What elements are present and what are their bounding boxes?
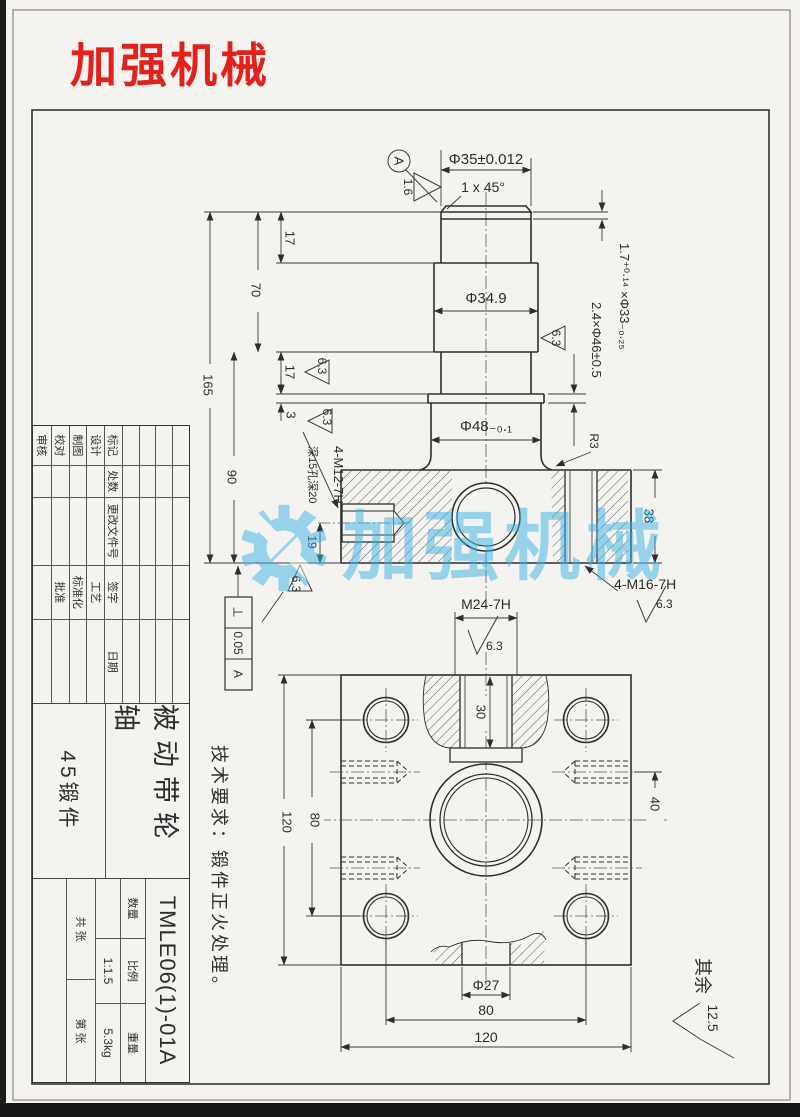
tb-empty [33, 566, 51, 621]
dim-165: 165 [200, 374, 215, 396]
tb-header-genggai: 更改文件号 [104, 498, 122, 566]
tb-value-weight: 5.3kg [95, 1004, 120, 1082]
finish-63-groove: 6.3 [549, 330, 563, 347]
tb-value-scale: 1:1.5 [95, 939, 120, 1004]
dim-r3: R3 [587, 433, 601, 449]
dim-chamfer: 1 x 45° [461, 179, 505, 195]
part-material: 45锻件 [33, 704, 105, 878]
tb-label-sheji: 设计 [86, 426, 104, 466]
tb-label-qty: 数量 [120, 879, 145, 939]
thread-m12: 4-M12-7H [331, 446, 346, 504]
company-logo: 加强机械 [70, 42, 270, 89]
datum-a-label: A [391, 157, 406, 166]
dim-38: 38 [641, 509, 656, 523]
tb-label-zhitu: 制图 [69, 426, 87, 466]
dim-17b: 17 [282, 365, 297, 379]
dim-80-bottom: 80 [478, 1002, 494, 1018]
dim-19: 19 [305, 535, 319, 549]
finish-63-m16: 6.3 [656, 597, 673, 611]
default-finish-prefix: 其余 [693, 958, 713, 994]
thread-m16: 4-M16-7H [614, 576, 676, 592]
dim-120-bottom: 120 [474, 1029, 498, 1045]
finish-1_6: 1.6 [401, 179, 415, 196]
tb-header-riqi: 日期 [104, 620, 122, 703]
bottom-centerlines [318, 652, 668, 985]
bore-outer [452, 483, 520, 551]
tb-label-pizhun: 批准 [51, 566, 69, 621]
dimension-lines [210, 170, 655, 1047]
dim-17a: 17 [282, 231, 297, 245]
tb-label-shenhe: 审核 [33, 426, 51, 466]
finish-63-b: 6.3 [320, 409, 334, 426]
dim-groove-mid: 2.4×Φ46±0.5 [589, 302, 604, 378]
revision-signature-area: 标记 处数 更改文件号 签字 日期 设计 工艺 制图 标准化 校对 批准 审核 [33, 426, 189, 704]
extension-lines [204, 150, 662, 1052]
tb-sheet-total: 共 张 [66, 879, 96, 980]
technical-requirements: 技术要求：锻件正火处理。 [209, 745, 233, 1023]
part-name-area: 被动带轮轴 45锻件 [33, 704, 189, 879]
dim-80-left: 80 [307, 813, 322, 827]
tol-symbol: ⊥ [230, 606, 245, 617]
tb-label-gongyi: 工艺 [86, 566, 104, 621]
drawing-sheet: Φ35±0.012 1 x 45° A 1.6 1.7⁺⁰·¹⁴ ×Φ33₋₀.… [0, 0, 800, 1117]
dim-phi27: Φ27 [473, 977, 500, 993]
part-name: 被动带轮轴 [105, 704, 189, 878]
dim-120-left: 120 [279, 811, 294, 833]
finish-63-a: 6.3 [315, 358, 329, 375]
tb-header-biaoji: 标记 [104, 426, 122, 466]
tb-label-jiaodui: 校对 [51, 426, 69, 466]
corner-holes [364, 698, 609, 939]
tb-label-scale: 比例 [120, 939, 145, 1004]
front-view [318, 192, 631, 600]
drawing-number-area: TMLE06(1)-01A 数量 比例 重量 1:1.5 5.3kg 共 张 第… [33, 879, 189, 1082]
dim-40: 40 [647, 797, 662, 811]
default-finish-value: 12.5 [705, 1004, 721, 1031]
title-block: 标记 处数 更改文件号 签字 日期 设计 工艺 制图 标准化 校对 批准 审核 [32, 425, 190, 1083]
dim-phi35: Φ35±0.012 [449, 151, 523, 168]
finish-63-c: 6.3 [289, 576, 303, 593]
finish-triangle-1_6 [414, 173, 441, 201]
tol-value: 0.05 [231, 631, 245, 655]
finish-63-m24: 6.3 [486, 639, 503, 653]
tb-header-qianzi: 签字 [104, 566, 122, 621]
bottom-view [318, 652, 668, 985]
tb-label-biaozhunhua: 标准化 [69, 566, 87, 621]
tb-label-weight: 重量 [120, 1004, 145, 1082]
tb-header-chushu: 处数 [104, 466, 122, 498]
dim-groove-top: 1.7⁺⁰·¹⁴ ×Φ33₋₀.₂₅ [617, 243, 632, 350]
thread-m12-depth: 深15孔深20 [306, 446, 319, 503]
dim-phi349: Φ34.9 [465, 290, 506, 307]
dimensions [204, 150, 662, 1052]
tb-sheet-no: 第 张 [66, 980, 96, 1082]
phi27-section [431, 931, 546, 965]
dim-70: 70 [248, 283, 263, 297]
m16-thread-lines [570, 471, 592, 562]
dim-90: 90 [224, 470, 239, 484]
drawing-number: TMLE06(1)-01A [145, 879, 189, 1082]
dim-phi48: Φ48₋₀.₁ [460, 418, 512, 435]
finish-check-default [673, 1003, 700, 1039]
dim-3: 3 [283, 411, 298, 418]
thread-m24: M24-7H [461, 596, 511, 612]
dim-30: 30 [473, 705, 488, 719]
tol-datum: A [231, 670, 245, 678]
